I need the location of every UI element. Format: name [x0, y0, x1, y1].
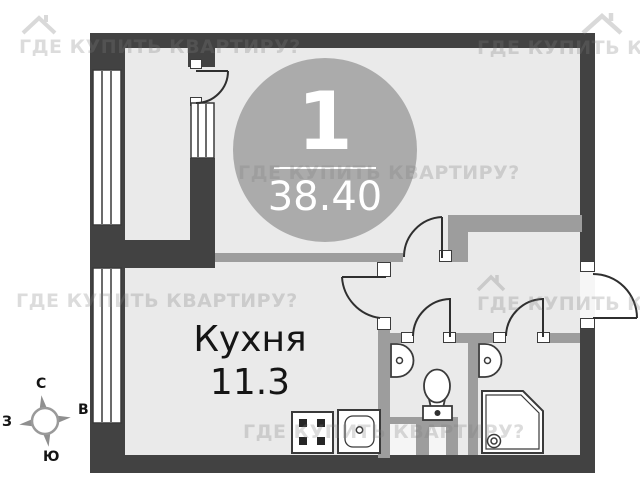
jamb-kitchen-bottom — [377, 317, 391, 330]
badge-divider — [274, 167, 376, 169]
apartment-total-area: 38.40 — [268, 176, 383, 218]
entrance-door-icon — [593, 274, 637, 318]
compass-north-label: С — [36, 376, 46, 392]
jamb-entrance-top — [580, 261, 595, 272]
compass-south-label: Ю — [43, 449, 59, 465]
room-area: 11.3 — [150, 361, 350, 404]
utility-shaft-niche-2 — [429, 427, 446, 455]
compass-east-label: В — [78, 402, 89, 418]
apartment-rooms-count: 1 — [297, 82, 353, 162]
jamb-balcony-bottom — [190, 97, 202, 106]
apartment-badge: 1 38.40 — [233, 58, 417, 242]
floorplan-screenshot: 1 38.40 Кухня 11.3 С В Ю З ГДЕ КУПИТЬ КВ… — [0, 0, 640, 480]
wall-exterior-left — [90, 33, 125, 455]
room-label-kitchen: Кухня 11.3 — [150, 318, 350, 404]
jamb-entrance-bottom — [580, 318, 595, 329]
compass-rose-icon — [16, 392, 75, 451]
wall-between-bathrooms — [468, 343, 478, 455]
jamb-bath-right — [537, 332, 550, 343]
wall-balcony-right-lower — [190, 158, 215, 243]
wall-exterior-top — [90, 33, 595, 48]
wall-exterior-right — [580, 33, 595, 473]
compass-west-label: З — [2, 414, 12, 430]
house-icon — [20, 12, 60, 36]
kitchen-door-opening — [378, 277, 390, 318]
utility-shaft-niche-1 — [390, 424, 416, 455]
jamb-balcony-top — [190, 59, 202, 69]
wall-exterior-bottom — [90, 455, 595, 473]
room-name: Кухня — [150, 318, 350, 361]
jamb-livingroom-door — [439, 250, 452, 262]
jamb-wc-left — [401, 332, 414, 343]
wall-livingroom-bottom — [460, 215, 582, 232]
wall-balcony-bottom — [125, 240, 215, 268]
jamb-kitchen-top — [377, 262, 391, 277]
jamb-wc-right — [443, 332, 456, 343]
entrance-opening — [580, 272, 595, 318]
jamb-bath-left — [493, 332, 506, 343]
wall-kitchen-top — [215, 253, 403, 262]
